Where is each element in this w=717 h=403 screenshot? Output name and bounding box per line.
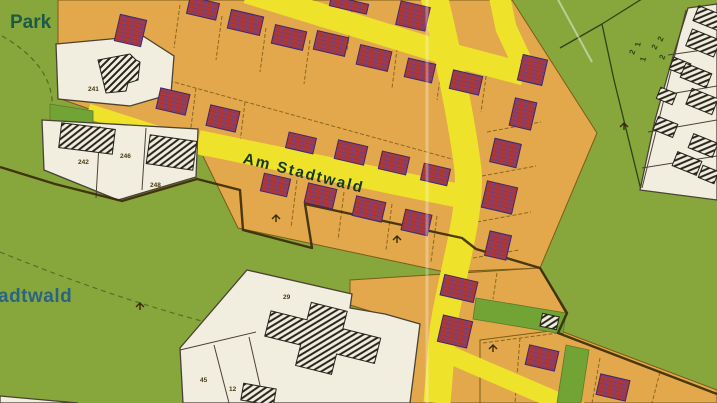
forest-label: Stadtwald bbox=[0, 286, 72, 307]
existing-shed bbox=[540, 313, 559, 329]
parcel-number: 12 bbox=[229, 386, 237, 393]
existing-building bbox=[146, 135, 197, 170]
map-canvas: Park Stadtwald Am Stadtwald 241 242 246 … bbox=[0, 0, 717, 403]
zoning-map: Park Stadtwald Am Stadtwald 241 242 246 … bbox=[0, 0, 717, 403]
parcel-number: 29 bbox=[283, 294, 291, 301]
parcel-number: 242 bbox=[78, 159, 89, 166]
parcel-number: 248 bbox=[150, 182, 161, 189]
planned-building bbox=[517, 55, 547, 86]
planned-building bbox=[114, 14, 146, 46]
parcel-number: 45 bbox=[200, 377, 208, 384]
parcel-number: 241 bbox=[88, 86, 99, 93]
parcel-number: 246 bbox=[120, 153, 131, 160]
park-label: Park bbox=[10, 12, 52, 33]
